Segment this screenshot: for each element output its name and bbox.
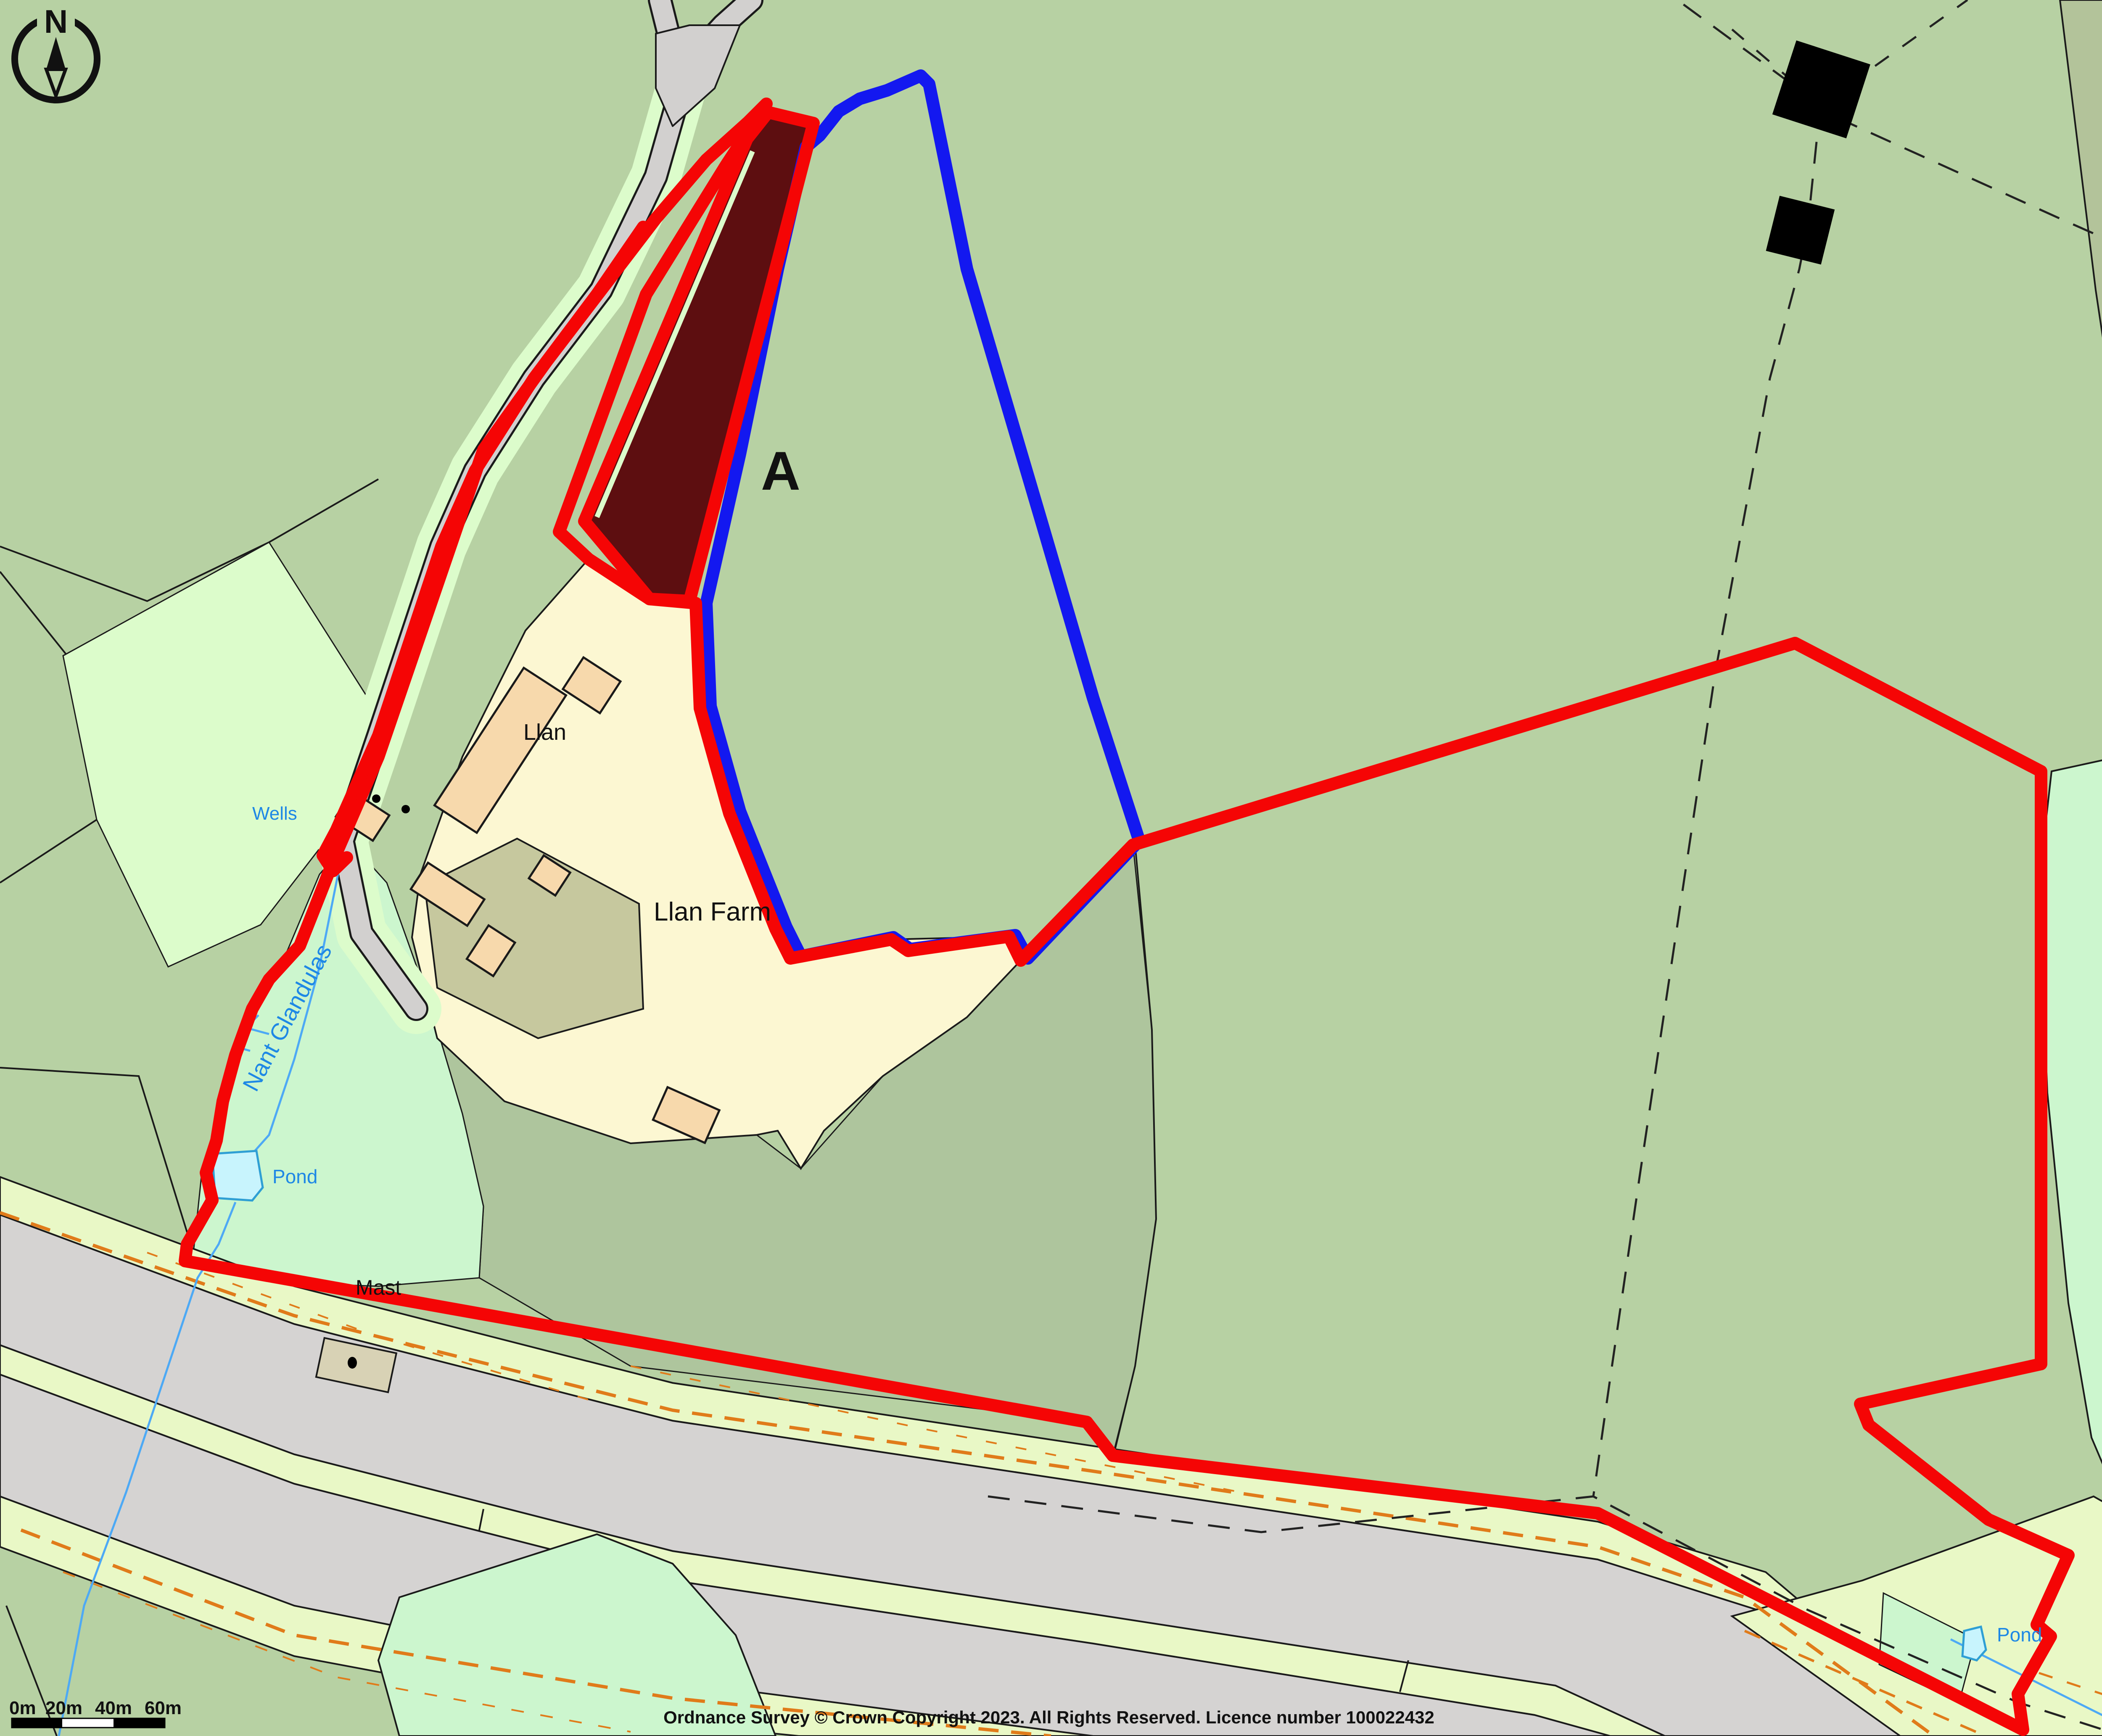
pond-southeast [1962,1627,1986,1660]
label-pond-west: Pond [272,1166,317,1187]
label-mast: Mast [356,1276,401,1299]
scale-40m: 40m [95,1698,132,1718]
well-dot-2 [401,805,410,813]
label-pond-southeast: Pond [1997,1624,2042,1646]
scale-20m: 20m [45,1698,82,1718]
map-viewport: A Llan Llan Farm Wells Nant Glandulas Po… [0,0,2102,1736]
label-llan: Llan [523,720,566,745]
scale-bar: 0m 20m 40m 60m [9,1698,182,1728]
scale-segment-3 [114,1718,165,1728]
compass-n-label: N [44,3,68,40]
copyright-attribution: Ordnance Survey © Crown Copyright 2023. … [663,1707,1434,1727]
mast-point [348,1357,357,1369]
scale-0m: 0m [9,1698,36,1718]
well-dot-1 [372,794,380,803]
scale-segment-1 [12,1718,62,1728]
label-parcel-a: A [761,440,800,501]
label-wells: Wells [252,803,297,824]
scale-60m: 60m [145,1698,182,1718]
label-llan-farm: Llan Farm [654,897,771,926]
pond-west [212,1151,263,1200]
